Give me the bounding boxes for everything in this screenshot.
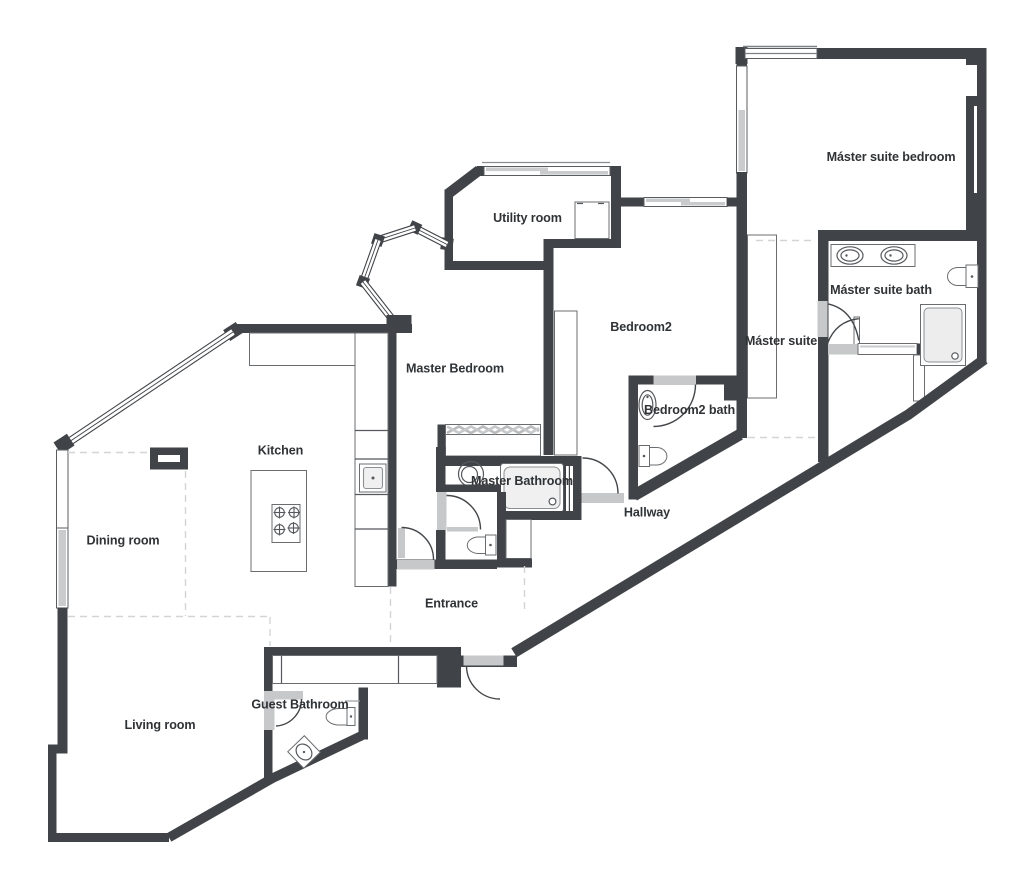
svg-text:Máster suite bath: Máster suite bath — [830, 283, 932, 297]
svg-text:Bedroom2: Bedroom2 — [610, 320, 672, 334]
svg-text:Máster suite bedroom: Máster suite bedroom — [827, 150, 956, 164]
svg-text:Kitchen: Kitchen — [258, 444, 303, 458]
svg-text:Dining room: Dining room — [86, 534, 159, 548]
svg-text:Máster suite: Máster suite — [745, 334, 817, 348]
svg-text:Master Bedroom: Master Bedroom — [406, 362, 504, 376]
svg-text:Bedroom2 bath: Bedroom2 bath — [644, 403, 735, 417]
svg-text:Guest Bathroom: Guest Bathroom — [251, 698, 348, 712]
svg-text:Hallway: Hallway — [624, 506, 670, 520]
svg-text:Utility room: Utility room — [493, 211, 562, 225]
svg-text:Entrance: Entrance — [425, 597, 478, 611]
svg-text:Living room: Living room — [125, 718, 196, 732]
